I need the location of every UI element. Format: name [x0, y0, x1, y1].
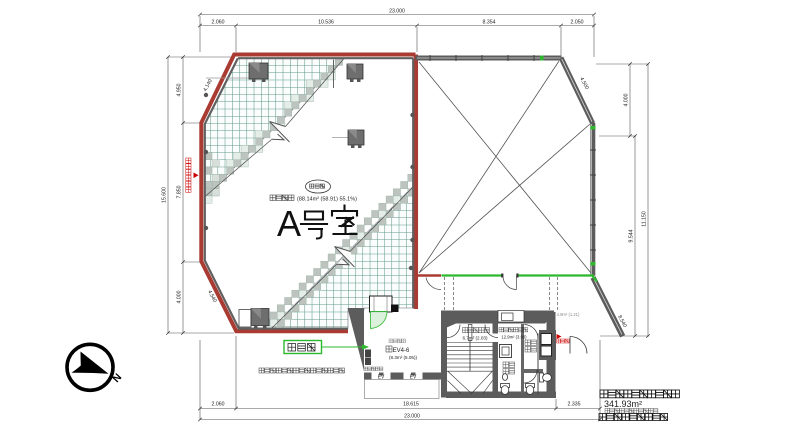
svg-text:4.000: 4.000 [624, 93, 630, 106]
svg-text:8.354: 8.354 [483, 20, 496, 26]
svg-text:2.050: 2.050 [571, 20, 584, 26]
svg-text:2.060: 2.060 [212, 20, 225, 26]
svg-text:A: A [277, 203, 301, 244]
svg-text:9.544: 9.544 [629, 229, 635, 242]
svg-text:4.9m² (1.21): 4.9m² (1.21) [557, 312, 580, 317]
svg-text:2.335: 2.335 [568, 402, 581, 408]
svg-text:4.950: 4.950 [177, 83, 183, 96]
svg-text:10.536: 10.536 [318, 20, 334, 26]
svg-text:18.615: 18.615 [403, 402, 419, 408]
svg-text:12.9m² (3.90): 12.9m² (3.90) [501, 335, 527, 340]
svg-text:23.000: 23.000 [404, 414, 420, 420]
svg-text:EV4-6: EV4-6 [393, 348, 410, 354]
svg-text:2.060: 2.060 [212, 402, 225, 408]
svg-text:15.600: 15.600 [162, 187, 168, 203]
svg-text:(8.3m² (5.05)): (8.3m² (5.05)) [389, 355, 418, 360]
svg-text:(88.14m² (58.91) 55.1%): (88.14m² (58.91) 55.1%) [297, 197, 357, 203]
svg-text:11.150: 11.150 [642, 211, 648, 227]
svg-text:341.93m²: 341.93m² [604, 399, 642, 409]
svg-text:4.000: 4.000 [177, 290, 183, 303]
svg-text:23.000: 23.000 [389, 9, 405, 15]
svg-text:6.7m² (2.03): 6.7m² (2.03) [462, 336, 487, 341]
svg-text:7.850: 7.850 [177, 185, 183, 198]
